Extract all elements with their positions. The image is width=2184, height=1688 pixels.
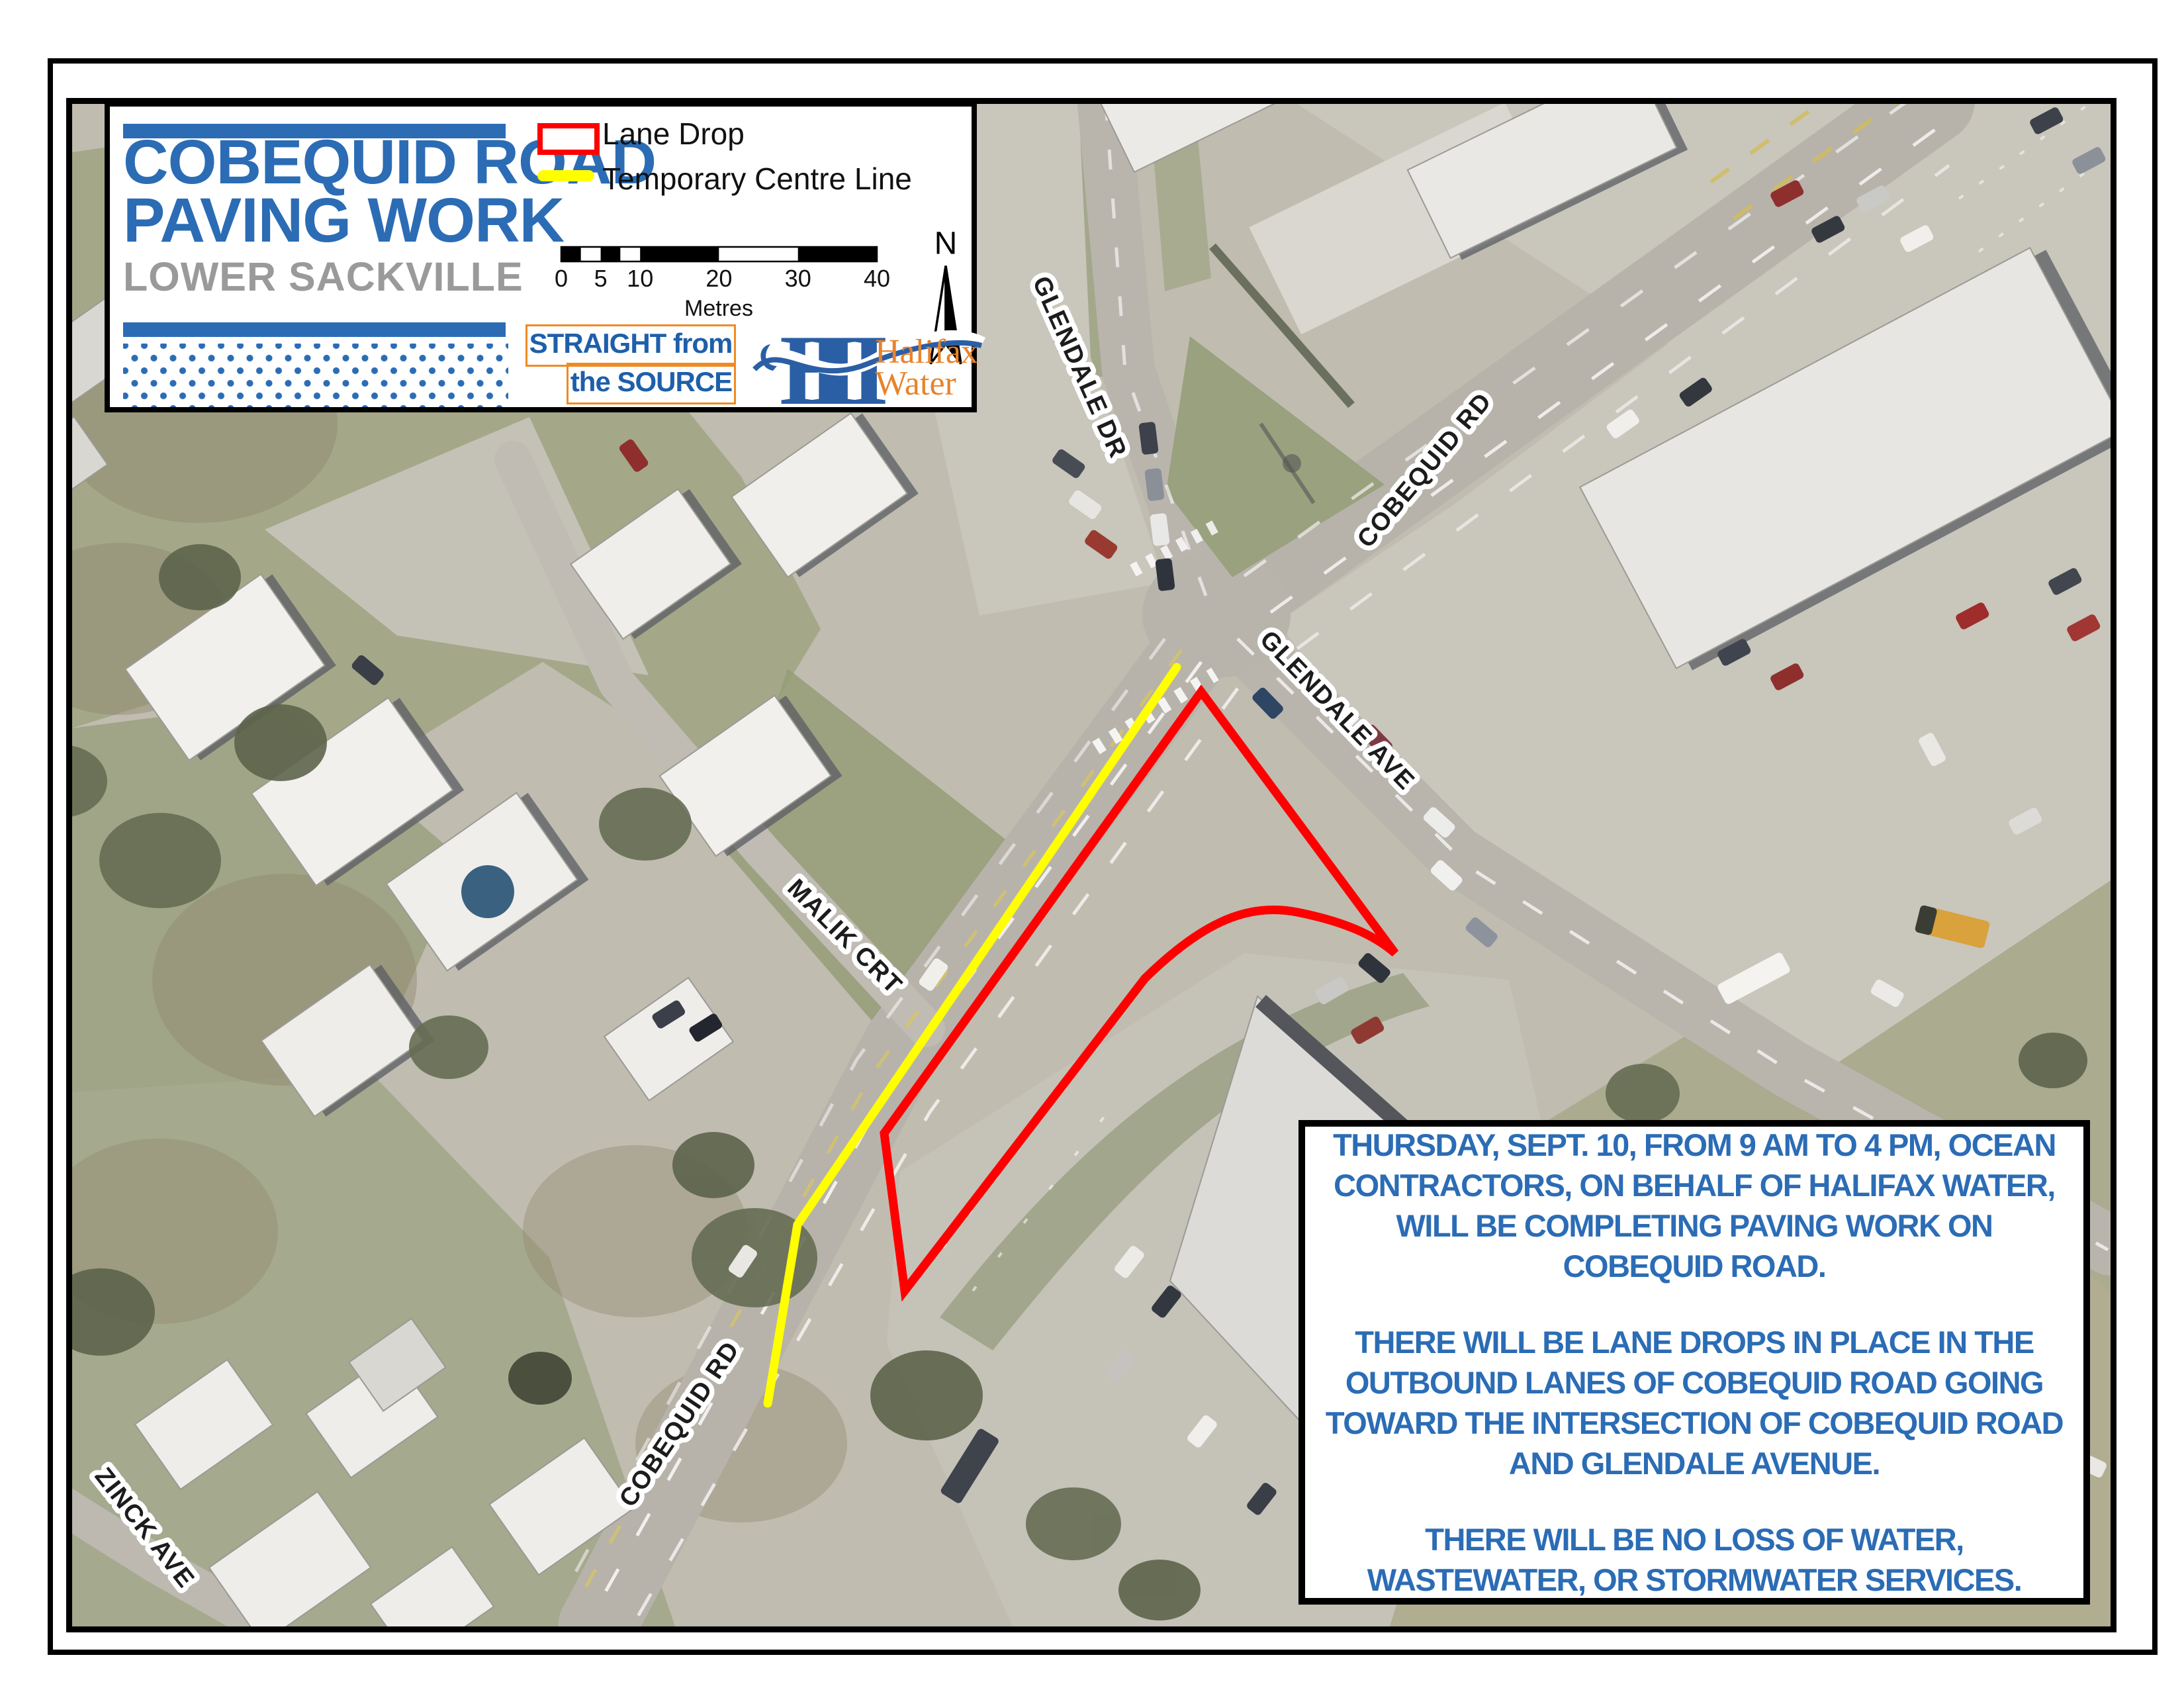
straight-logo-line2: the SOURCE [570, 366, 732, 397]
scale-tick-20: 20 [705, 265, 732, 292]
title-bottom-bar [123, 322, 506, 337]
scale-unit-label: Metres [684, 296, 753, 321]
notice-paragraph-lane-drops: THERE WILL BE LANE DROPS IN PLACE IN THE… [1324, 1322, 2065, 1483]
page-subtitle: LOWER SACKVILLE [123, 254, 523, 300]
straight-logo-line1: STRAIGHT from [529, 328, 733, 359]
straight-from-the-source-logo-line2: the SOURCE [567, 363, 736, 404]
notice-panel: THURSDAY, SEPT. 10, FROM 9 AM TO 4 PM, O… [1298, 1120, 2090, 1605]
lane-drop-legend-swatch-icon [537, 123, 600, 155]
scale-tick-30: 30 [785, 265, 811, 292]
dot-pattern-decoration [123, 344, 508, 407]
north-label: N [934, 226, 958, 261]
pond [508, 1352, 572, 1405]
title-line2: PAVING WORK [123, 191, 656, 250]
notice-paragraph-schedule: THURSDAY, SEPT. 10, FROM 9 AM TO 4 PM, O… [1324, 1125, 2065, 1286]
notice-paragraph-services: THERE WILL BE NO LOSS OF WATER, WASTEWAT… [1324, 1519, 2065, 1600]
pool [461, 865, 514, 918]
scale-tick-0: 0 [555, 265, 568, 292]
straight-from-the-source-logo: STRAIGHT from [525, 324, 736, 367]
title-legend-panel: COBEQUID ROAD PAVING WORK LOWER SACKVILL… [105, 101, 977, 412]
scale-tick-5: 5 [594, 265, 608, 292]
halifax-water-logo-icon: H H Halifax Water [761, 305, 979, 417]
centre-line-legend-label: Temporary Centre Line [602, 161, 912, 197]
halifax-water-name-line2: Water [875, 365, 956, 402]
lane-drop-legend-label: Lane Drop [602, 116, 745, 152]
scale-tick-40: 40 [864, 265, 890, 292]
centre-line-legend-swatch-icon [537, 170, 594, 181]
scale-tick-10: 10 [627, 265, 653, 292]
